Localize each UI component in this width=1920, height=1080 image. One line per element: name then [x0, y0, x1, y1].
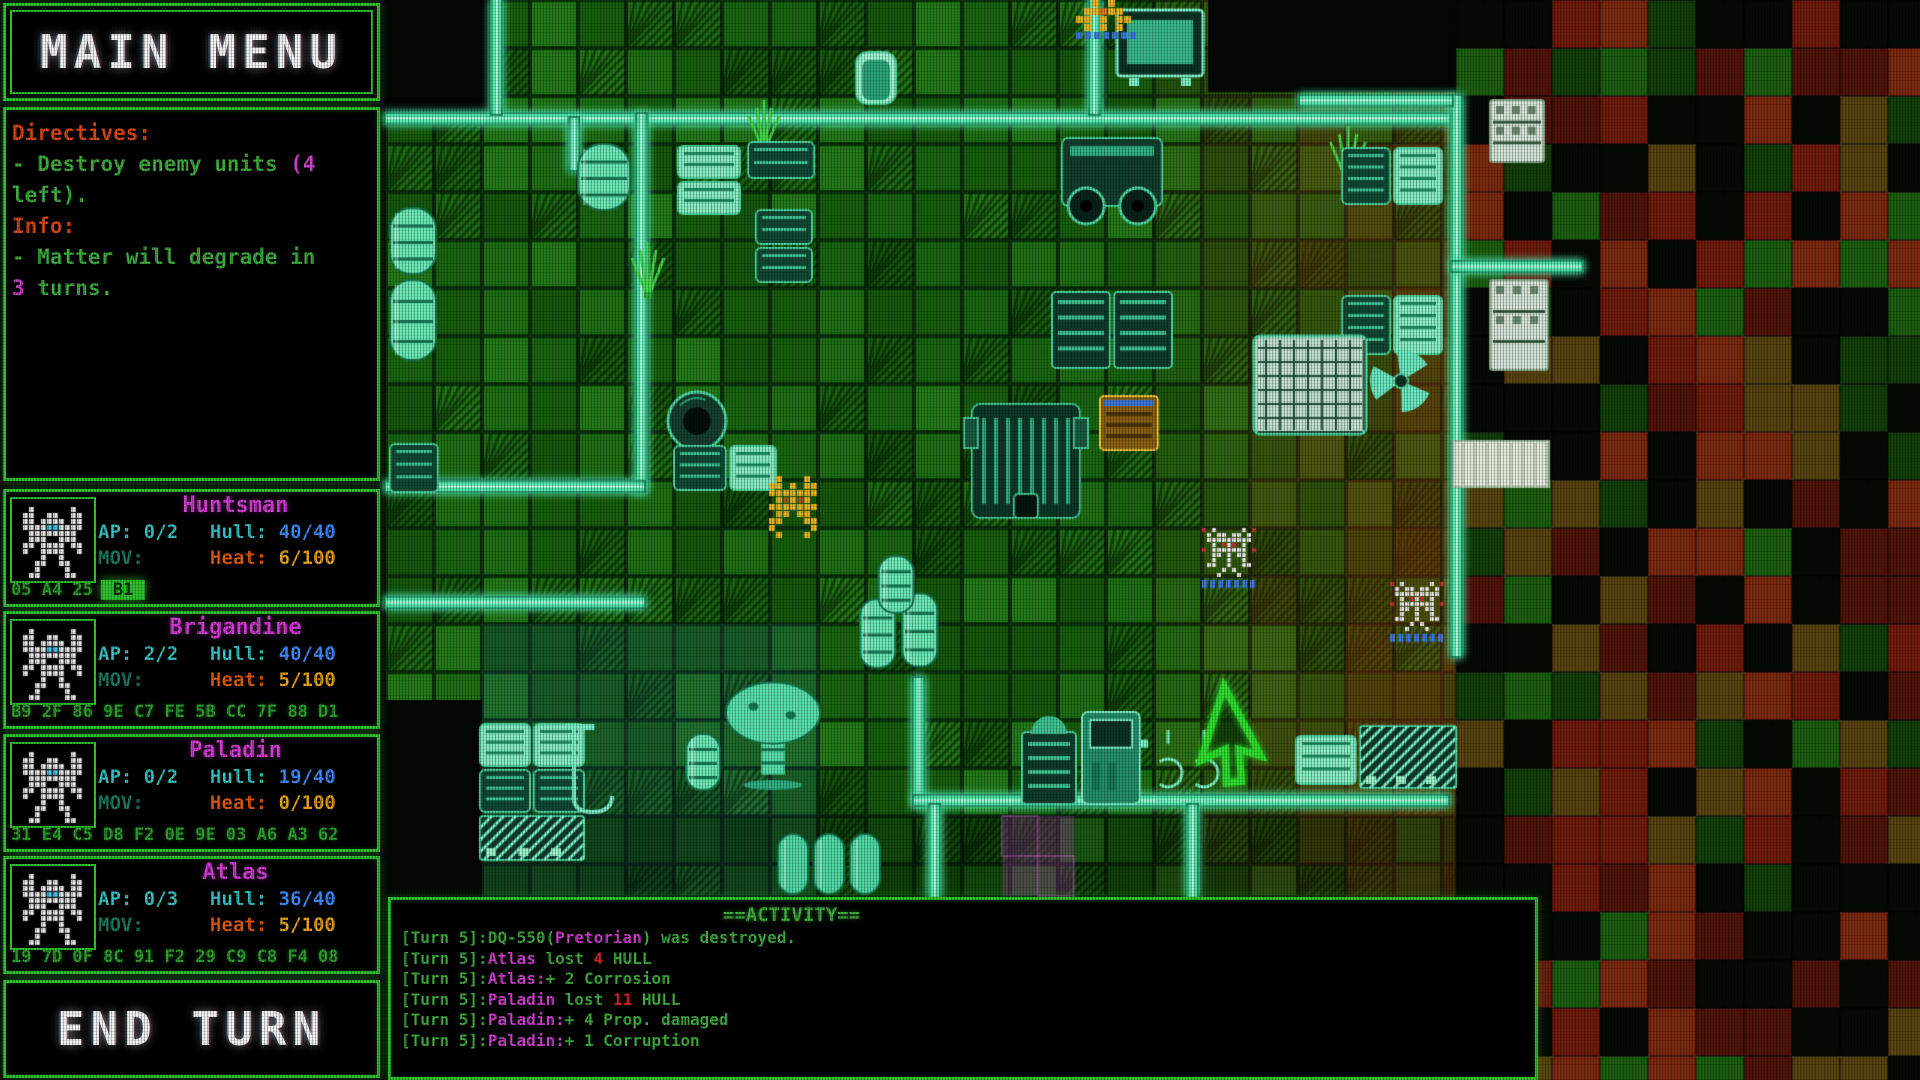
- unit-mov-label: MOV:: [98, 669, 210, 691]
- unit-hull-label: Hull:: [210, 888, 279, 910]
- unit-card-atlas[interactable]: Atlas AP: 0/3 Hull: 36/40 MOV: Heat: 5/1…: [3, 856, 380, 974]
- unit-name: Brigandine: [98, 615, 373, 640]
- unit-hull-value: 36/40: [279, 888, 336, 910]
- unit-hull-value: 40/40: [279, 521, 336, 543]
- unit-hull-label: Hull:: [210, 643, 279, 665]
- end-turn-label: END TURN: [57, 1002, 327, 1056]
- unit-ap: AP: 2/2: [98, 643, 210, 665]
- unit-ap: AP: 0/2: [98, 766, 210, 788]
- unit-hull-label: Hull:: [210, 766, 279, 788]
- unit-portrait: [10, 619, 96, 705]
- unit-heat-label: Heat:: [210, 669, 279, 691]
- unit-ap: AP: 0/2: [98, 521, 210, 543]
- unit-heat-value: 5/100: [279, 669, 336, 691]
- activity-log-panel: ==ACTIVITY== [Turn 5]:DQ-550(Pretorian) …: [388, 897, 1538, 1080]
- activity-log-lines: [Turn 5]:DQ-550(Pretorian) was destroyed…: [401, 928, 1525, 1051]
- unit-heat-label: Heat:: [210, 914, 279, 936]
- main-menu-button[interactable]: MAIN MENU: [3, 3, 380, 101]
- unit-name: Atlas: [98, 860, 373, 885]
- unit-card-paladin[interactable]: Paladin AP: 0/2 Hull: 19/40 MOV: Heat: 0…: [3, 734, 380, 852]
- unit-portrait: [10, 742, 96, 828]
- unit-hull-value: 19/40: [279, 766, 336, 788]
- unit-card-brigandine[interactable]: Brigandine AP: 2/2 Hull: 40/40 MOV: Heat…: [3, 611, 380, 729]
- unit-heat-label: Heat:: [210, 547, 279, 569]
- unit-heat-value: 6/100: [279, 547, 336, 569]
- unit-hex: 19 7D 0F 8C 91 F2 29 C9 C8 F4 08: [11, 947, 339, 967]
- directives-text: Directives:- Destroy enemy units (4left)…: [12, 118, 371, 304]
- directives-panel: Directives:- Destroy enemy units (4left)…: [3, 107, 380, 481]
- unit-mov-label: MOV:: [98, 792, 210, 814]
- unit-portrait: [10, 864, 96, 950]
- unit-heat-label: Heat:: [210, 792, 279, 814]
- unit-hex: 05 A4 25B1: [11, 580, 145, 600]
- unit-hull-label: Hull:: [210, 521, 279, 543]
- unit-card-huntsman[interactable]: Huntsman AP: 0/2 Hull: 40/40 MOV: Heat: …: [3, 489, 380, 607]
- unit-name: Huntsman: [98, 493, 373, 518]
- game-screen: MAIN MENU Directives:- Destroy enemy uni…: [0, 0, 1920, 1080]
- unit-heat-value: 0/100: [279, 792, 336, 814]
- unit-hex: 31 E4 C5 D8 F2 0E 9E 03 A6 A3 62: [11, 825, 339, 845]
- unit-mov-label: MOV:: [98, 914, 210, 936]
- unit-hex: B9 2F 86 9E C7 FE 5B CC 7F 88 D1: [11, 702, 339, 722]
- end-turn-button[interactable]: END TURN: [3, 980, 380, 1078]
- unit-name: Paladin: [98, 738, 373, 763]
- unit-portrait: [10, 497, 96, 583]
- unit-hull-value: 40/40: [279, 643, 336, 665]
- activity-log-header: ==ACTIVITY==: [723, 904, 860, 926]
- unit-hex-highlight: B1: [101, 580, 145, 600]
- unit-heat-value: 5/100: [279, 914, 336, 936]
- unit-ap: AP: 0/3: [98, 888, 210, 910]
- main-menu-label: MAIN MENU: [40, 25, 343, 79]
- unit-mov-label: MOV:: [98, 547, 210, 569]
